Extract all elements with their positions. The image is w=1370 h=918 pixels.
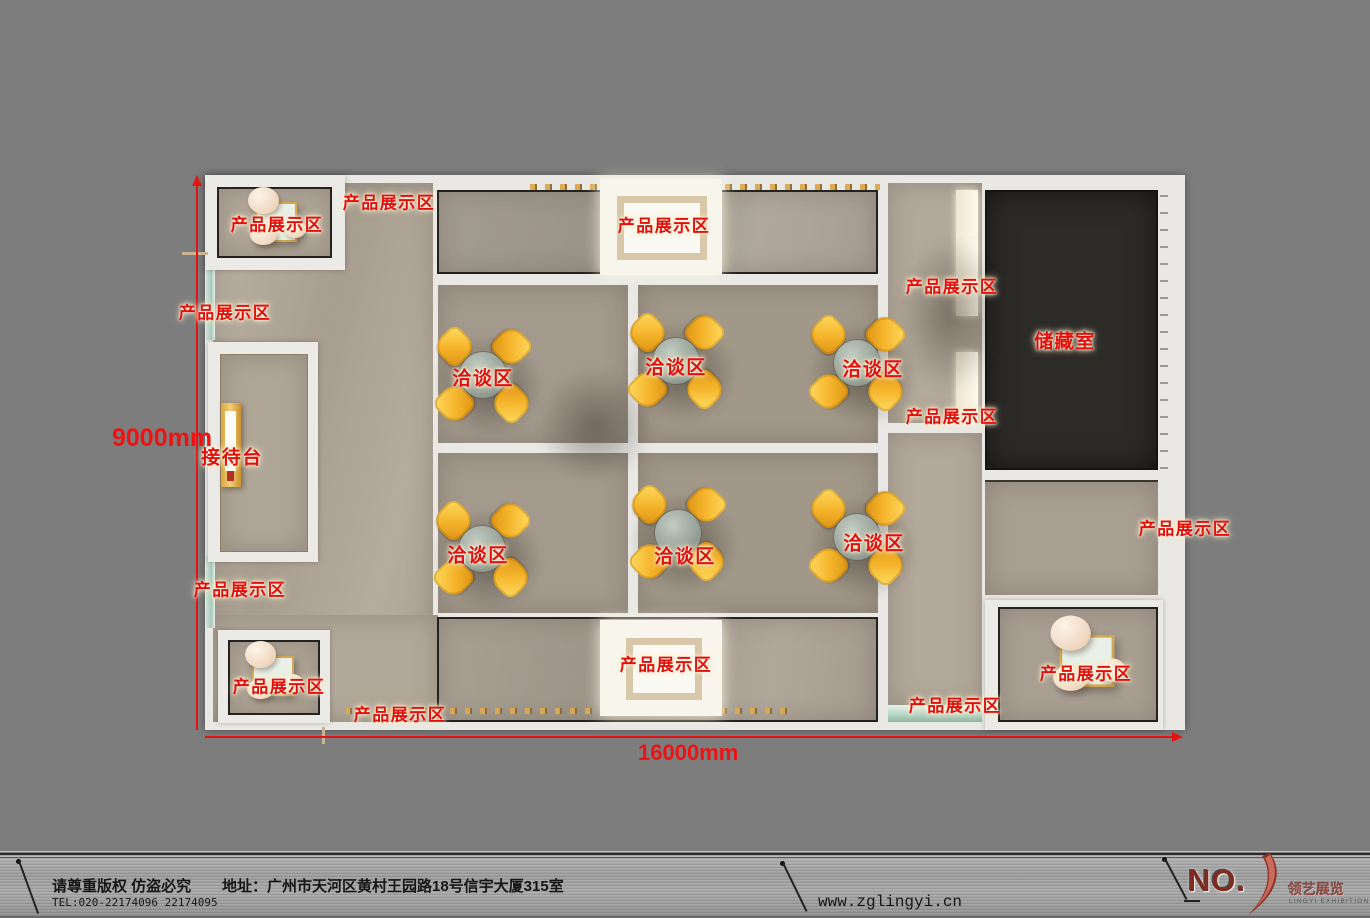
area-label: 产品展示区 <box>909 692 1002 717</box>
leader-line-foot <box>1184 900 1200 902</box>
area-label: 产品展示区 <box>233 673 326 698</box>
area-label: 产品展示区 <box>354 701 447 726</box>
title-block-footer: 请尊重版权 仿盗必究 TEL:020-22174096 22174095 地址：… <box>0 853 1370 918</box>
area-label: 产品展示区 <box>1040 660 1133 685</box>
copyright-notice: 请尊重版权 仿盗必究 <box>52 875 191 896</box>
area-label-meeting: 洽谈区 <box>842 355 904 382</box>
dimension-line-horizontal <box>205 736 1177 738</box>
dimension-arrow-up <box>192 175 202 186</box>
area-label: 产品展示区 <box>620 651 713 676</box>
dimension-line-vertical <box>196 184 198 730</box>
area-label: 产品展示区 <box>194 576 287 601</box>
area-label: 产品展示区 <box>906 273 999 298</box>
area-label: 产品展示区 <box>343 189 436 214</box>
wall-shelf-ticks <box>1160 195 1168 470</box>
telephone: TEL:020-22174096 22174095 <box>52 896 218 909</box>
area-label-meeting: 洽谈区 <box>645 353 707 380</box>
floor-plan-canvas: 产品展示区 产品展示区 产品展示区 产品展示区 接待台 产品展示区 产品展示区 … <box>0 0 1370 918</box>
area-label: 产品展示区 <box>179 299 272 324</box>
area-label-meeting: 洽谈区 <box>447 541 509 568</box>
brand-name-en: LINGYI EXHIBITION <box>1289 898 1369 905</box>
room-right-display-floor <box>985 480 1158 595</box>
dimension-tick <box>182 252 208 255</box>
dimension-arrow-right <box>1172 732 1183 742</box>
logo-swoosh-icon <box>1240 851 1294 917</box>
area-label: 产品展示区 <box>906 403 999 428</box>
area-label-storage: 储藏室 <box>1034 327 1096 354</box>
dimension-height: 9000mm <box>112 424 212 453</box>
area-label-meeting: 洽谈区 <box>843 529 905 556</box>
area-label-meeting: 洽谈区 <box>452 364 514 391</box>
divider-line <box>0 853 1370 855</box>
address: 地址：广州市天河区黄村王园路18号信宇大厦315室 <box>222 875 564 896</box>
brand-name-cn: 领艺展览 <box>1288 879 1344 899</box>
display-cabinet <box>956 190 978 236</box>
divider-line <box>0 851 1370 852</box>
area-label: 产品展示区 <box>618 212 711 237</box>
exhibition-floor-plan <box>205 175 1185 730</box>
dimension-width: 16000mm <box>638 740 738 766</box>
area-label-meeting: 洽谈区 <box>654 542 716 569</box>
area-label: 产品展示区 <box>1139 515 1232 540</box>
company-logo-text: NO. <box>1188 863 1246 899</box>
website-url[interactable]: www.zglingyi.cn <box>818 893 962 911</box>
area-label: 产品展示区 <box>231 211 324 236</box>
